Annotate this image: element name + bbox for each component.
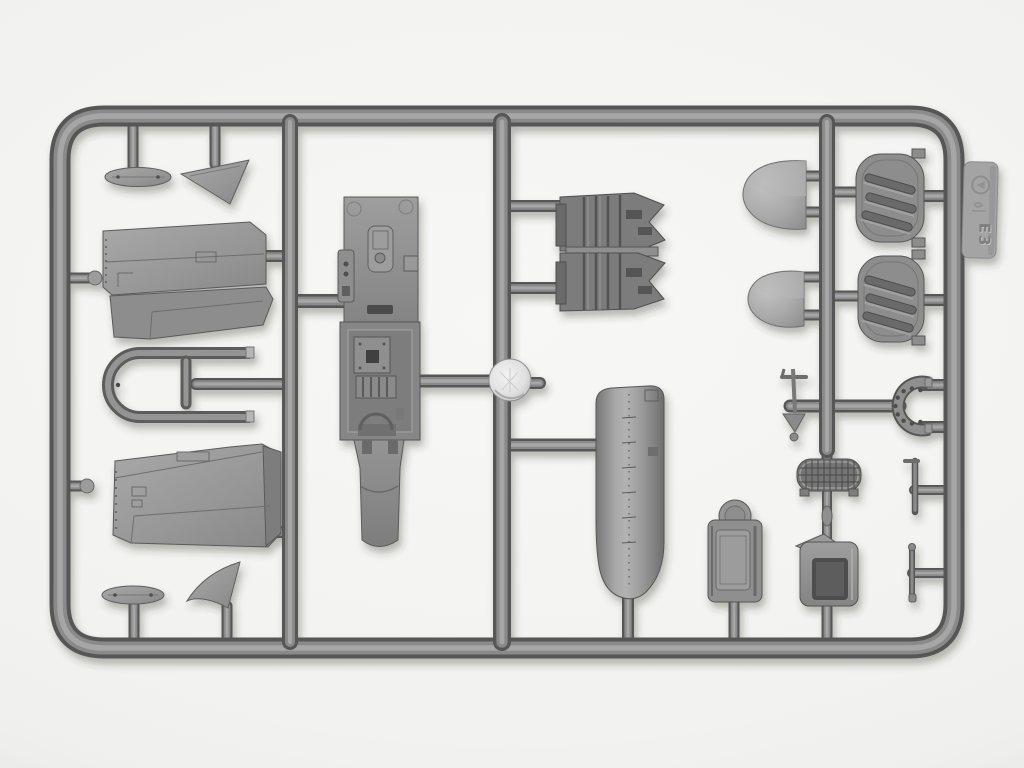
louver-shutter-upper — [856, 149, 925, 247]
fin-triangle-top — [181, 160, 249, 204]
louver-shutter-lower — [858, 250, 925, 345]
lever-handle-lower — [909, 544, 917, 603]
wing-half-lower — [113, 444, 281, 547]
photo-background: E3 E3 — [0, 0, 1024, 768]
sprue-tag: E3 E3 — [962, 162, 999, 259]
small-fairing-top — [105, 168, 171, 187]
cowling-cylinder — [596, 386, 664, 599]
cockpit-floor-panel — [338, 197, 420, 547]
engine-half-upper — [556, 193, 665, 251]
gate-ball-stubs — [80, 271, 102, 493]
sprue: E3 E3 — [60, 116, 998, 648]
sprue-photo: E3 E3 — [0, 0, 1024, 768]
engine-half-lower — [556, 247, 665, 311]
cowling-dome-small — [748, 271, 804, 327]
bucket-seat — [796, 534, 858, 606]
small-fairing-bottom — [102, 586, 164, 604]
wing-half-upper — [103, 222, 273, 339]
perforated-collar — [893, 378, 932, 433]
seat-backrest — [708, 500, 762, 602]
tag-marking: E3 — [975, 223, 994, 248]
sprue-gate-disc — [489, 359, 531, 401]
fin-triangle-bottom — [187, 562, 240, 608]
cowling-dome-large — [743, 161, 806, 230]
